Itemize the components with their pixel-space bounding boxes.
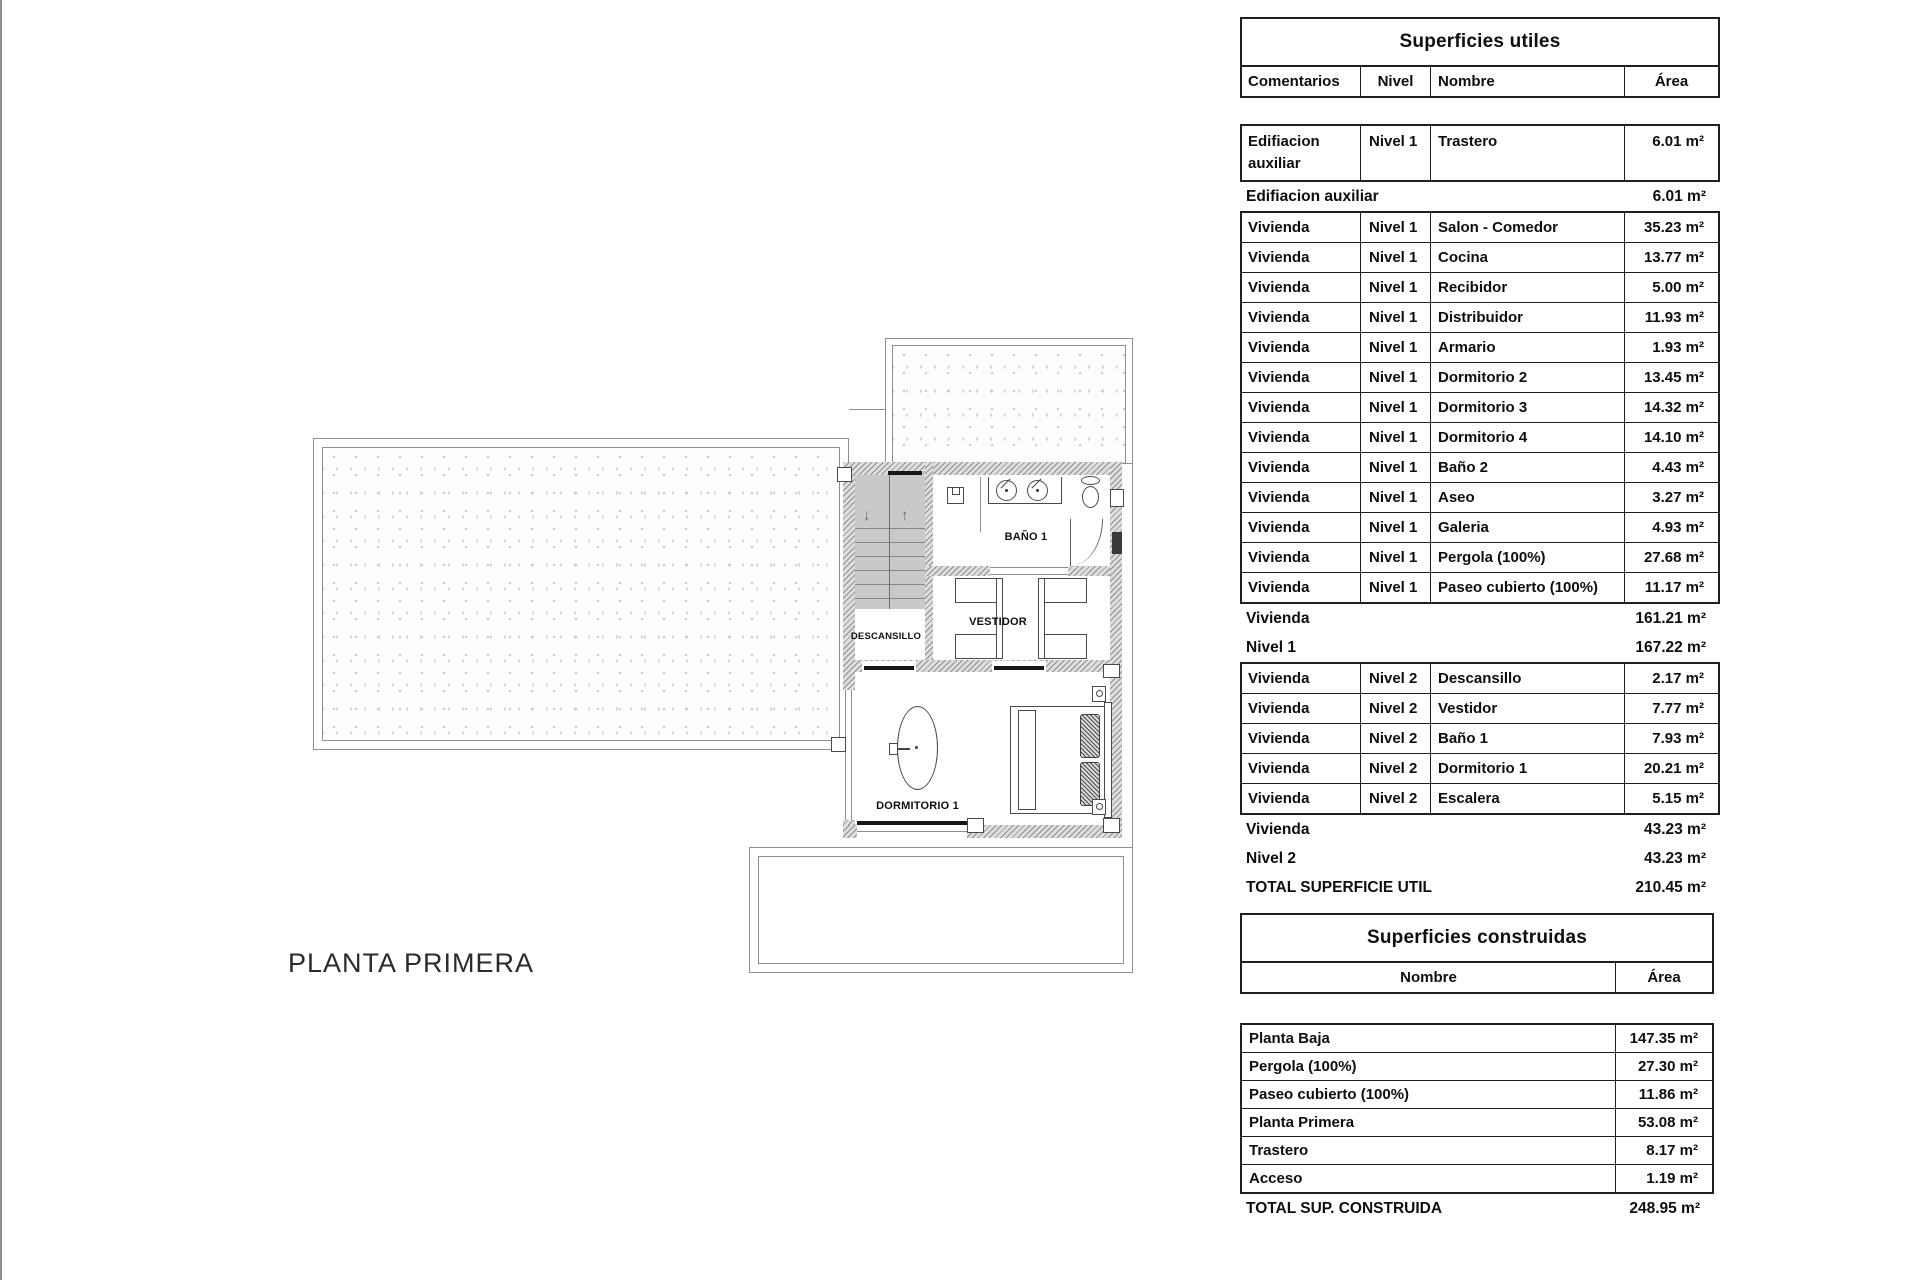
- table-row: Paseo cubierto (100%) 11.86 m²: [1242, 1080, 1712, 1108]
- roof-line: [1132, 463, 1133, 848]
- terrace-top: [892, 345, 1126, 464]
- total-label: TOTAL SUP. CONSTRUIDA: [1246, 1200, 1442, 1218]
- cell-comentarios: Vivienda: [1242, 664, 1360, 693]
- cell-nombre: Baño 1: [1430, 724, 1624, 753]
- cell-nombre: Trastero: [1430, 126, 1624, 180]
- cell-nombre: Escalera: [1430, 784, 1624, 813]
- header-area: Área: [1624, 67, 1718, 96]
- sink-drain: [1005, 489, 1008, 492]
- table-title: Superficies utiles: [1242, 19, 1718, 65]
- subtotal-row: Edifiacion auxiliar 6.01 m²: [1240, 182, 1720, 211]
- table-row: Vivienda Nivel 2 Vestidor 7.77 m²: [1242, 693, 1718, 723]
- stair-divider: [889, 475, 890, 609]
- total-label: TOTAL SUPERFICIE UTIL: [1246, 879, 1432, 897]
- cell-nivel: Nivel 1: [1360, 573, 1430, 602]
- cell-area: 1.19 m²: [1615, 1165, 1712, 1192]
- subtotal-row: Vivienda 43.23 m²: [1240, 815, 1720, 844]
- group-construidas: Planta Baja 147.35 m² Pergola (100%) 27.…: [1240, 1023, 1714, 1194]
- cell-nombre: Salon - Comedor: [1430, 213, 1624, 242]
- cell-area: 35.23 m²: [1624, 213, 1718, 242]
- cell-area: 20.21 m²: [1624, 754, 1718, 783]
- room-label-descansillo: DESCANSILLO: [845, 631, 927, 642]
- cell-comentarios: Vivienda: [1242, 754, 1360, 783]
- cell-nombre: Paseo cubierto (100%): [1242, 1081, 1615, 1108]
- table-head: Superficies utiles Comentarios Nivel Nom…: [1240, 17, 1720, 98]
- cell-nombre: Distribuidor: [1430, 303, 1624, 332]
- cell-nivel: Nivel 1: [1360, 453, 1430, 482]
- cell-nivel: Nivel 1: [1360, 213, 1430, 242]
- cell-area: 53.08 m²: [1615, 1109, 1712, 1136]
- cell-nombre: Aseo: [1430, 483, 1624, 512]
- wardrobe: [1042, 578, 1087, 603]
- cell-nivel: Nivel 1: [1360, 273, 1430, 302]
- opening-line: [990, 574, 1068, 575]
- cell-nivel: Nivel 1: [1360, 483, 1430, 512]
- header-row: Comentarios Nivel Nombre Área: [1242, 65, 1718, 96]
- cell-nombre: Baño 2: [1430, 453, 1624, 482]
- cell-nivel: Nivel 1: [1360, 333, 1430, 362]
- header-row: Nombre Área: [1242, 961, 1712, 992]
- room-label-vestidor: VESTIDOR: [958, 616, 1038, 628]
- subtotal-label: Edifiacion auxiliar: [1246, 188, 1379, 206]
- plan-title: PLANTA PRIMERA: [288, 948, 534, 979]
- table-row: Vivienda Nivel 1 Dormitorio 4 14.10 m²: [1242, 422, 1718, 452]
- lamp-icon: [1096, 803, 1103, 810]
- cell-area: 2.17 m²: [1624, 664, 1718, 693]
- header-comentarios: Comentarios: [1242, 67, 1360, 96]
- cell-area: 11.93 m²: [1624, 303, 1718, 332]
- cell-nivel: Nivel 1: [1360, 363, 1430, 392]
- table-title: Superficies construidas: [1242, 915, 1712, 961]
- cell-area: 4.43 m²: [1624, 453, 1718, 482]
- cell-nombre: Galeria: [1430, 513, 1624, 542]
- cell-nivel: Nivel 2: [1360, 754, 1430, 783]
- subtotal-row: Nivel 2 43.23 m²: [1240, 844, 1720, 873]
- cell-area: 147.35 m²: [1615, 1025, 1712, 1052]
- table-row: Vivienda Nivel 1 Galeria 4.93 m²: [1242, 512, 1718, 542]
- table-row: Vivienda Nivel 2 Baño 1 7.93 m²: [1242, 723, 1718, 753]
- cell-nivel: Nivel 2: [1360, 664, 1430, 693]
- wardrobe-side: [1038, 578, 1045, 659]
- table-row: Vivienda Nivel 2 Dormitorio 1 20.21 m²: [1242, 753, 1718, 783]
- cell-comentarios: Vivienda: [1242, 303, 1360, 332]
- table-superficies-construidas: Superficies construidas Nombre Área Plan…: [1240, 913, 1714, 1224]
- cell-nivel: Nivel 1: [1360, 393, 1430, 422]
- subtotal-area: 43.23 m²: [1644, 850, 1706, 868]
- shower-drain-inner: [952, 487, 960, 495]
- cell-nombre: Pergola (100%): [1430, 543, 1624, 572]
- window-line: [851, 690, 852, 820]
- cell-comentarios: Vivienda: [1242, 724, 1360, 753]
- cell-nombre: Cocina: [1430, 243, 1624, 272]
- group-nivel2: Vivienda Nivel 2 Descansillo 2.17 m² Viv…: [1240, 662, 1720, 815]
- page: { "plan": { "title": "PLANTA PRIMERA", "…: [0, 0, 1920, 1280]
- cell-comentarios: Edifiacion auxiliar: [1242, 126, 1360, 180]
- cell-nombre: Dormitorio 2: [1430, 363, 1624, 392]
- toilet-icon: [1082, 486, 1099, 508]
- cell-nombre: Descansillo: [1430, 664, 1624, 693]
- subtotal-label: Vivienda: [1246, 610, 1309, 628]
- subtotal-label: Nivel 1: [1246, 639, 1296, 657]
- subtotal-area: 167.22 m²: [1635, 639, 1706, 657]
- table-row: Vivienda Nivel 1 Aseo 3.27 m²: [1242, 482, 1718, 512]
- cell-nombre: Acceso: [1242, 1165, 1615, 1192]
- lamp-icon: [1096, 690, 1103, 697]
- pillar: [1110, 489, 1124, 507]
- cell-nivel: Nivel 1: [1360, 303, 1430, 332]
- window-sill: [857, 821, 967, 825]
- door-threshold: [864, 666, 914, 670]
- terrace-bottom: [758, 856, 1124, 964]
- subtotal-area: 161.21 m²: [1635, 610, 1706, 628]
- cell-comentarios: Vivienda: [1242, 784, 1360, 813]
- wall-top: [843, 462, 1122, 475]
- pillar: [1103, 818, 1120, 833]
- bathtub-faucet: [889, 743, 898, 755]
- room-label-dormitorio: DORMITORIO 1: [855, 800, 980, 812]
- cell-nombre: Trastero: [1242, 1137, 1615, 1164]
- header-area: Área: [1615, 963, 1712, 992]
- window-line: [845, 690, 846, 820]
- group-nivel1: Vivienda Nivel 1 Salon - Comedor 35.23 m…: [1240, 211, 1720, 604]
- subtotal-area: 43.23 m²: [1644, 821, 1706, 839]
- cell-comentarios: Vivienda: [1242, 483, 1360, 512]
- cell-area: 5.00 m²: [1624, 273, 1718, 302]
- cell-comentarios: Vivienda: [1242, 694, 1360, 723]
- table-row: Vivienda Nivel 1 Baño 2 4.43 m²: [1242, 452, 1718, 482]
- terrace-left: [322, 447, 840, 741]
- cell-nivel: Nivel 1: [1360, 243, 1430, 272]
- cell-area: 1.93 m²: [1624, 333, 1718, 362]
- cell-nombre: Dormitorio 3: [1430, 393, 1624, 422]
- cell-comentarios: Vivienda: [1242, 243, 1360, 272]
- cell-area: 14.32 m²: [1624, 393, 1718, 422]
- cell-comentarios: Vivienda: [1242, 333, 1360, 362]
- cell-nivel: Nivel 1: [1360, 543, 1430, 572]
- cell-area: 7.77 m²: [1624, 694, 1718, 723]
- cell-area: 6.01 m²: [1624, 126, 1718, 180]
- wardrobe: [955, 634, 1000, 659]
- cell-nombre: Vestidor: [1430, 694, 1624, 723]
- cell-comentarios: Vivienda: [1242, 513, 1360, 542]
- cell-area: 13.45 m²: [1624, 363, 1718, 392]
- window-line: [857, 831, 967, 832]
- table-row: Vivienda Nivel 1 Paseo cubierto (100%) 1…: [1242, 572, 1718, 602]
- cell-nivel: Nivel 2: [1360, 694, 1430, 723]
- bathtub-spout: [898, 748, 910, 750]
- cell-area: 7.93 m²: [1624, 724, 1718, 753]
- cell-area: 27.30 m²: [1615, 1053, 1712, 1080]
- subtotal-label: Vivienda: [1246, 821, 1309, 839]
- pillar: [1103, 664, 1120, 678]
- cell-area: 3.27 m²: [1624, 483, 1718, 512]
- cell-comentarios: Vivienda: [1242, 273, 1360, 302]
- cell-comentarios: Vivienda: [1242, 213, 1360, 242]
- cell-comentarios: Vivienda: [1242, 363, 1360, 392]
- header-nombre: Nombre: [1430, 67, 1624, 96]
- cell-area: 11.17 m²: [1624, 573, 1718, 602]
- table-row: Trastero 8.17 m²: [1242, 1136, 1712, 1164]
- stair-treads: [855, 515, 925, 609]
- bed-foot: [1018, 710, 1036, 810]
- sink-drain: [1036, 489, 1039, 492]
- table-row: Vivienda Nivel 1 Cocina 13.77 m²: [1242, 242, 1718, 272]
- cell-area: 27.68 m²: [1624, 543, 1718, 572]
- table-row: Vivienda Nivel 1 Armario 1.93 m²: [1242, 332, 1718, 362]
- cell-comentarios: Vivienda: [1242, 423, 1360, 452]
- cell-comentarios: Vivienda: [1242, 453, 1360, 482]
- toilet-tank: [1081, 476, 1100, 485]
- door-threshold: [994, 666, 1044, 670]
- cell-nombre: Recibidor: [1430, 273, 1624, 302]
- total-row: TOTAL SUP. CONSTRUIDA 248.95 m²: [1240, 1194, 1714, 1224]
- table-row: Vivienda Nivel 1 Salon - Comedor 35.23 m…: [1242, 213, 1718, 242]
- table-row: Vivienda Nivel 1 Pergola (100%) 27.68 m²: [1242, 542, 1718, 572]
- table-row: Vivienda Nivel 2 Escalera 5.15 m²: [1242, 783, 1718, 813]
- roof-line: [849, 409, 886, 410]
- cell-nivel: Nivel 1: [1360, 126, 1430, 180]
- wall-niche: [1112, 532, 1122, 554]
- pillar: [837, 467, 852, 482]
- total-area: 248.95 m²: [1629, 1200, 1700, 1218]
- cell-nombre: Planta Baja: [1242, 1025, 1615, 1052]
- table-row: Acceso 1.19 m²: [1242, 1164, 1712, 1192]
- table-row: Vivienda Nivel 1 Distribuidor 11.93 m²: [1242, 302, 1718, 332]
- cell-nombre: Paseo cubierto (100%): [1430, 573, 1624, 602]
- subtotal-row: Nivel 1 167.22 m²: [1240, 633, 1720, 662]
- cell-comentarios: Vivienda: [1242, 543, 1360, 572]
- stair-up-arrow: ↑: [901, 508, 909, 523]
- subtotal-area: 6.01 m²: [1653, 188, 1706, 206]
- opening-line: [990, 567, 1068, 568]
- cell-nombre: Planta Primera: [1242, 1109, 1615, 1136]
- subtotal-label: Nivel 2: [1246, 850, 1296, 868]
- cell-comentarios: Vivienda: [1242, 393, 1360, 422]
- stair-down-arrow: ↓: [863, 508, 871, 523]
- table-head: Superficies construidas Nombre Área: [1240, 913, 1714, 994]
- table-row: Pergola (100%) 27.30 m²: [1242, 1052, 1712, 1080]
- table-row: Vivienda Nivel 1 Dormitorio 2 13.45 m²: [1242, 362, 1718, 392]
- header-nombre: Nombre: [1242, 963, 1615, 992]
- cell-nivel: Nivel 2: [1360, 784, 1430, 813]
- total-area: 210.45 m²: [1635, 879, 1706, 897]
- room-label-bano: BAÑO 1: [981, 531, 1071, 543]
- group-aux: Edifiacion auxiliar Nivel 1 Trastero 6.0…: [1240, 124, 1720, 182]
- table-row: Edifiacion auxiliar Nivel 1 Trastero 6.0…: [1242, 126, 1718, 180]
- wardrobe: [1042, 634, 1087, 659]
- total-row: TOTAL SUPERFICIE UTIL 210.45 m²: [1240, 873, 1720, 902]
- cell-nombre: Dormitorio 4: [1430, 423, 1624, 452]
- table-row: Planta Primera 53.08 m²: [1242, 1108, 1712, 1136]
- pillar: [967, 818, 984, 833]
- bathtub-drain: [915, 746, 918, 749]
- cell-area: 13.77 m²: [1624, 243, 1718, 272]
- table-superficies-utiles: Superficies utiles Comentarios Nivel Nom…: [1240, 17, 1720, 902]
- cell-nivel: Nivel 1: [1360, 423, 1430, 452]
- cell-nombre: Pergola (100%): [1242, 1053, 1615, 1080]
- pillow: [1080, 714, 1100, 758]
- wardrobe: [955, 578, 1000, 603]
- table-row: Vivienda Nivel 2 Descansillo 2.17 m²: [1242, 664, 1718, 693]
- cell-area: 14.10 m²: [1624, 423, 1718, 452]
- table-row: Vivienda Nivel 1 Recibidor 5.00 m²: [1242, 272, 1718, 302]
- cell-nombre: Armario: [1430, 333, 1624, 362]
- cell-comentarios: Vivienda: [1242, 573, 1360, 602]
- cell-area: 5.15 m²: [1624, 784, 1718, 813]
- cell-area: 4.93 m²: [1624, 513, 1718, 542]
- cell-area: 8.17 m²: [1615, 1137, 1712, 1164]
- cell-nombre: Dormitorio 1: [1430, 754, 1624, 783]
- table-row: Planta Baja 147.35 m²: [1242, 1025, 1712, 1052]
- shower-screen: [980, 477, 981, 532]
- cell-area: 11.86 m²: [1615, 1081, 1712, 1108]
- cell-nivel: Nivel 2: [1360, 724, 1430, 753]
- table-row: Vivienda Nivel 1 Dormitorio 3 14.32 m²: [1242, 392, 1718, 422]
- cell-nivel: Nivel 1: [1360, 513, 1430, 542]
- pillar: [831, 737, 846, 752]
- subtotal-row: Vivienda 161.21 m²: [1240, 604, 1720, 633]
- header-nivel: Nivel: [1360, 67, 1430, 96]
